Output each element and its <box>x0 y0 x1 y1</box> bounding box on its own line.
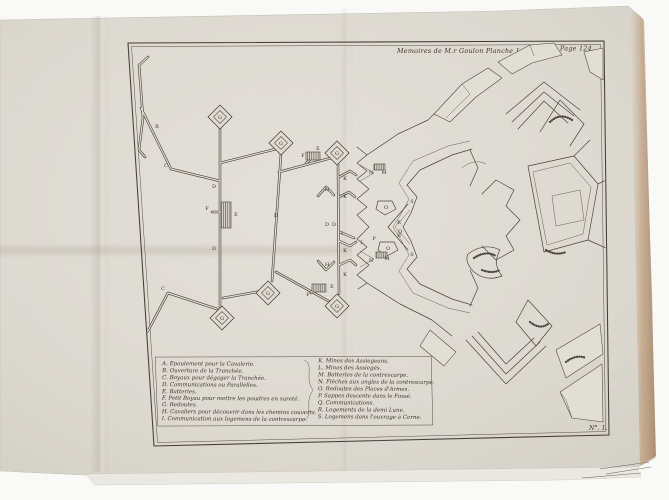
map-label-K: K <box>343 194 347 200</box>
map-label-H: H <box>325 187 330 193</box>
map-label-R: R <box>397 220 401 226</box>
map-label-D: D <box>212 184 216 190</box>
legend-item-P: P. Sappes descente dans le Fossé. <box>317 392 412 400</box>
map-label-N: N <box>369 170 374 176</box>
book-photo: Memoires de M.r Goulon Planche 1.re Page… <box>0 0 669 500</box>
legend-item-M: M. Batteries de la contrescarpe. <box>317 372 408 379</box>
map-label-G: G <box>220 316 224 322</box>
map-label-F: F <box>301 153 305 159</box>
map-label-K: K <box>343 248 347 254</box>
map-label-E: E <box>316 146 320 152</box>
legend-item-K: K. Mines des Assiegeans. <box>317 358 389 365</box>
map-label-S: S <box>410 252 414 258</box>
map-label-C: C <box>161 286 165 292</box>
map-label-F: F <box>205 206 209 212</box>
legend-item-E: E. Batteries. <box>161 389 197 395</box>
map-label-B: B <box>155 124 159 130</box>
map-label-N: N <box>369 258 374 264</box>
map-label-G: G <box>335 304 339 310</box>
map-label-D: D <box>212 246 216 252</box>
legend-item-S: S. Logemens dans l'ouvrage à Corne. <box>318 413 422 421</box>
map-label-G: G <box>335 151 339 157</box>
legend-item-H: H. Cavaliers pour découvrir dans les che… <box>161 408 317 416</box>
legend-item-D: D. Communications ou Parallelles. <box>161 382 258 389</box>
map-label-G: G <box>266 291 270 297</box>
legend-item-B: B. Ouverture de la Tranchée. <box>161 367 244 375</box>
legend-item-C: C. Boyaux pour dégager la Tranchée. <box>162 374 266 382</box>
map-label-O: O <box>384 205 388 211</box>
map-label-R: R <box>397 233 401 239</box>
legend-item-N: N. Flèches aux angles de la contrescarpe… <box>317 378 435 386</box>
map-label-F: F <box>306 292 310 298</box>
map-label-K: K <box>343 176 347 182</box>
map-label-D: D <box>274 213 278 219</box>
legend-item-Q: Q. Communications. <box>318 400 375 406</box>
plate-number: N°. 1. <box>588 425 607 432</box>
legend-item-A: A. Epaulement pour la Cavalerie. <box>161 361 255 368</box>
legend-item-O: O. Redoutes des Places d'Armes. <box>318 386 409 393</box>
legend-item-I: I. Communication aux logemens de la cont… <box>161 416 307 423</box>
map-label-K: K <box>343 272 347 278</box>
map-label-I: I <box>341 231 343 237</box>
plate-header-title: Memoires de M.r Goulon Planche 1.re <box>396 47 530 55</box>
map-label-E: E <box>234 212 238 218</box>
legend-item-R: R. Logements de la demi Lune. <box>317 407 405 414</box>
map-label-E: E <box>330 284 334 290</box>
map-label-G: G <box>218 115 222 121</box>
map-label-D: D <box>332 222 336 228</box>
engraved-plate-scene: Memoires de M.r Goulon Planche 1.re Page… <box>0 0 669 500</box>
map-label-M: M <box>381 170 386 176</box>
fold-crease-horizontal <box>0 243 352 258</box>
map-label-C: C <box>164 163 168 169</box>
map-label-H: H <box>325 262 330 268</box>
map-label-G: G <box>279 141 283 147</box>
map-label-D: D <box>325 222 329 228</box>
map-label-O: O <box>386 246 390 252</box>
map-label-S: S <box>410 199 414 205</box>
map-label-M: M <box>384 256 389 262</box>
legend-item-L: L. Mines des Assiegés. <box>317 364 382 371</box>
legend-item-G: G. Redoutes. <box>162 402 198 408</box>
